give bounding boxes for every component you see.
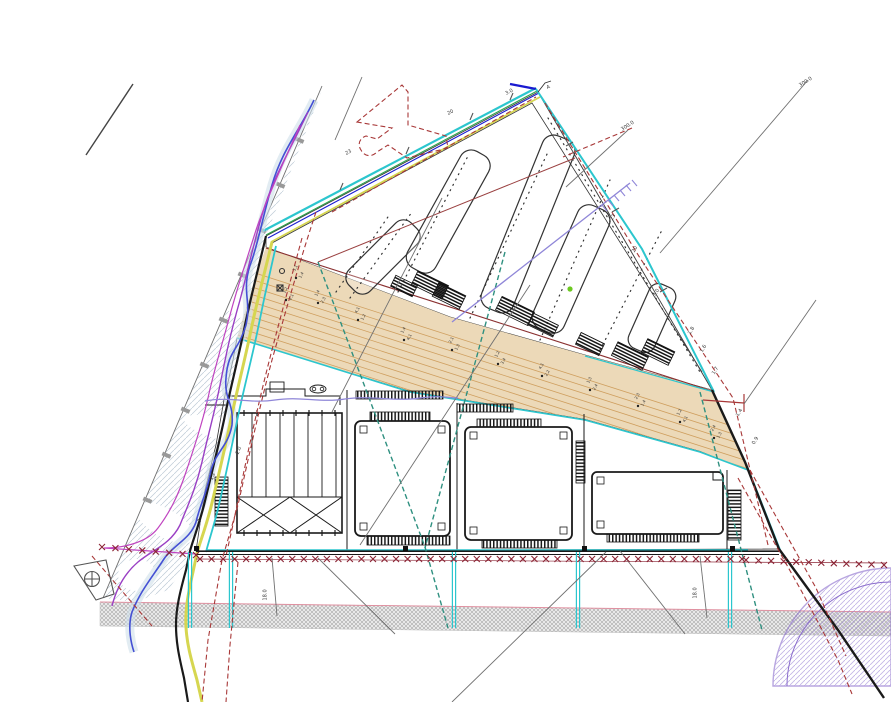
elevation-point [317,302,319,304]
building-3-side-dock [576,441,585,483]
elevation-point [357,319,359,321]
elevation-point [497,363,499,365]
elevation-point [403,339,405,341]
site-plan-page: 23203.0A300.0300.023203.01.81.61.71.40.9… [0,0,891,702]
elevation-point [589,389,591,391]
elevation-point [451,349,453,351]
elevation-point [637,405,639,407]
green-point-marker [567,286,572,291]
site-plan-canvas [0,0,891,702]
building-4-side-dock [728,490,741,540]
elevation-point [713,437,715,439]
building-4-dock [607,534,699,542]
elevation-point [541,375,543,377]
building-2-dock [367,536,450,545]
elevation-point [679,421,681,423]
building-3-dock [482,540,557,548]
elevation-point [295,277,297,279]
elevation-point [285,299,287,301]
